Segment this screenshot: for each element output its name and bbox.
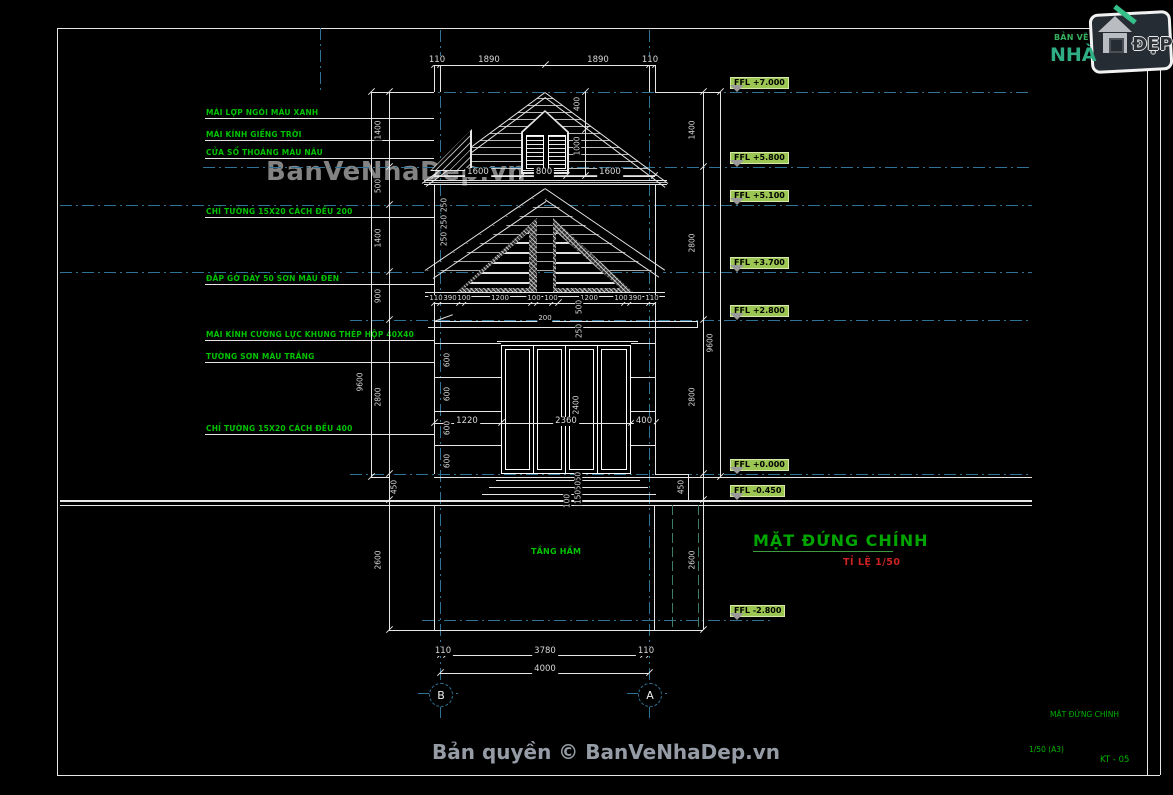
dim-line-left-inner — [389, 92, 390, 630]
logo-name-text: NHÀ — [1050, 44, 1097, 66]
callout-vent-window: CỬA SỔ THOÁNG MÀU NÂU — [206, 149, 323, 157]
dim-value: 600 — [443, 386, 451, 402]
callout-black-molding: ĐẮP GỜ DÀY 50 SƠN MÀU ĐEN — [206, 275, 339, 283]
dim-ext — [655, 65, 656, 92]
grid-line-b — [440, 30, 441, 682]
frame-top — [57, 28, 1160, 29]
dim-value: 1600 — [465, 168, 491, 177]
callout-glass-canopy: MÁI KÍNH CƯỜNG LỰC KHUNG THÉP HỘP 40X40 — [206, 331, 414, 339]
dim-value: 2800 — [688, 386, 696, 407]
titleblock-sheet-no: KT - 05 — [1100, 755, 1129, 765]
dim-value: 2400 — [572, 394, 580, 415]
step-line — [489, 487, 648, 488]
door-lintel — [497, 341, 638, 342]
dim-value: 1890 — [476, 56, 502, 65]
leader-line — [205, 118, 434, 119]
step-line — [496, 480, 640, 481]
dim-value: 1890 — [585, 56, 611, 65]
site-logo: BẢN VẼ NHÀ ĐẸP — [1040, 8, 1173, 78]
callout-wall-trim-400: CHỈ TƯỜNG 15X20 CÁCH ĐỀU 400 — [206, 425, 353, 433]
dim-value: 110 — [636, 647, 656, 656]
dim-value: 400 — [634, 417, 654, 426]
dim-value: 100 — [563, 493, 571, 509]
dim-value: 250 — [440, 197, 448, 213]
wall-band — [434, 377, 501, 378]
dim-value: 1200 — [490, 295, 510, 302]
leader-line — [205, 434, 434, 435]
door-leaf — [565, 345, 598, 474]
logo-top-text: BẢN VẼ — [1054, 34, 1089, 42]
dim-value: 3780 — [532, 647, 558, 656]
grid-bubble-b: B — [429, 683, 453, 707]
level-marker-arrow — [730, 493, 744, 500]
callout-wall-trim-200: CHỈ TƯỜNG 15X20 CÁCH ĐỀU 200 — [206, 208, 353, 216]
dim-value: 1000 — [573, 135, 581, 156]
gable-eave-line — [425, 292, 665, 293]
dim-value: 110 — [433, 647, 453, 656]
callout-white-wall: TƯỜNG SƠN MÀU TRẮNG — [206, 353, 315, 361]
dim-value: 110 — [640, 56, 660, 65]
dim-value: 450 — [390, 479, 398, 495]
dim-value: 600 — [443, 420, 451, 436]
dim-value: 9600 — [356, 371, 364, 392]
dim-value: 9600 — [706, 332, 714, 353]
dim-value: 150 — [574, 489, 582, 505]
dim-value: 2800 — [374, 386, 382, 407]
dim-value: 1400 — [688, 119, 696, 140]
frame-left — [57, 28, 58, 775]
zero-level-line — [434, 477, 1032, 478]
door-leaf — [597, 345, 631, 474]
dormer-shutter-left — [526, 135, 544, 169]
door-leaf-panel — [505, 349, 530, 470]
dim-value: 1400 — [374, 119, 382, 140]
dim-value: 1600 — [597, 168, 623, 177]
basement-boundary-dash — [698, 505, 699, 630]
wall-band — [631, 411, 655, 412]
level-marker-arrow — [730, 198, 744, 205]
ground-line — [60, 500, 1032, 502]
dim-ext — [655, 92, 720, 93]
dim-value: 2600 — [374, 549, 382, 570]
eave-line — [424, 184, 667, 185]
dim-ext — [371, 92, 434, 93]
dim-value: 200 — [537, 315, 552, 322]
door-leaf-panel — [601, 349, 627, 470]
titleblock-scale: 1/50 (A3) — [1029, 745, 1064, 754]
dim-value: 100 — [543, 295, 558, 302]
wall-band — [631, 343, 655, 344]
callout-roof-tiles: MÁI LỢP NGÓI MÀU XANH — [206, 109, 318, 117]
frame-right-outer — [1160, 28, 1161, 775]
dim-value: 450 — [677, 479, 685, 495]
canopy-line — [434, 321, 697, 322]
door-leaf — [533, 345, 566, 474]
dormer-shutter-right — [548, 135, 566, 169]
door-leaf — [501, 345, 534, 474]
logo-suffix-text: ĐẸP — [1132, 34, 1173, 55]
level-line-7000 — [422, 92, 1032, 93]
level-marker-arrow — [730, 313, 744, 320]
dim-value: 500 — [374, 178, 382, 194]
title-underline — [753, 551, 893, 552]
frame-bottom — [57, 775, 1160, 776]
dim-value: 2360 — [553, 417, 579, 426]
dim-ext — [655, 630, 703, 631]
dim-value: 100 — [456, 295, 471, 302]
basement-wall — [434, 505, 435, 630]
dim-value: 250 — [440, 214, 448, 230]
leader-line — [205, 158, 434, 159]
callout-skylight: MÁI KÍNH GIẾNG TRỜI — [206, 131, 302, 139]
basement-wall — [654, 505, 655, 630]
dim-line-right-inner — [703, 92, 704, 630]
basement-label: TẦNG HẦM — [531, 548, 581, 556]
wall-left — [434, 184, 435, 474]
level-marker-arrow — [730, 467, 744, 474]
wall-band — [631, 445, 655, 446]
dim-value: 400 — [573, 96, 581, 112]
level-marker-arrow — [730, 160, 744, 167]
level-marker-arrow — [730, 613, 744, 620]
level-line-0000 — [350, 474, 1032, 475]
cad-sheet: BanVeNhaDep.vn BẢN VẼ NHÀ ĐẸP MÁI LỢP NG… — [0, 0, 1173, 795]
dim-value: 900 — [374, 288, 382, 304]
dim-ext — [440, 65, 441, 92]
dim-ext — [649, 65, 650, 92]
dim-ext — [655, 474, 688, 475]
dim-value: 800 — [534, 168, 554, 177]
dim-ext — [434, 65, 435, 92]
dim-value: 2800 — [688, 232, 696, 253]
dim-value: 1400 — [374, 227, 382, 248]
drawing-scale: TỈ LỆ 1/50 — [843, 557, 900, 568]
wall-band — [434, 445, 501, 446]
wall-right — [655, 184, 656, 474]
grid-line-b-tail — [440, 706, 441, 718]
eave-line — [424, 180, 667, 181]
wall-band — [434, 411, 501, 412]
level-marker-arrow — [730, 265, 744, 272]
dim-value: 250 — [440, 231, 448, 247]
frame-right-inner — [1147, 28, 1148, 775]
dim-value: 110 — [644, 295, 659, 302]
footer-copyright: Bản quyền © BanVeNhaDep.vn — [432, 740, 780, 764]
leader-line — [205, 284, 434, 285]
dim-value: 390 — [627, 295, 642, 302]
level-line-3700 — [60, 272, 1032, 273]
wall-band — [434, 343, 501, 344]
dim-line-dormer — [585, 92, 586, 176]
leader-line — [205, 340, 434, 341]
drawing-title: MẶT ĐỨNG CHÍNH — [753, 531, 929, 550]
dim-value: 600 — [443, 352, 451, 368]
stray-grid-line — [320, 28, 321, 94]
dim-line-right-450 — [688, 474, 689, 500]
dim-value: 100 — [526, 295, 541, 302]
dim-value: 2600 — [688, 549, 696, 570]
wall-band — [631, 377, 655, 378]
dim-value: 4000 — [532, 665, 558, 674]
grid-line-a — [649, 30, 650, 682]
house-window-icon — [1109, 38, 1124, 53]
dim-value: 1220 — [454, 417, 480, 426]
leader-line — [205, 140, 434, 141]
level-line-m2800 — [422, 620, 770, 621]
basement-floor — [434, 630, 655, 631]
door-leaf-panel — [537, 349, 562, 470]
canopy-edge — [697, 321, 698, 328]
ground-line-lower — [60, 505, 1032, 506]
dim-value: 600 — [443, 453, 451, 469]
grid-bubble-a: A — [638, 683, 662, 707]
dim-value: 250 — [575, 323, 583, 339]
canopy-line — [428, 327, 697, 328]
tk-element — [700, 626, 707, 633]
dim-value: 110 — [427, 56, 447, 65]
titleblock-drawing-name: MẶT ĐỨNG CHÍNH — [1050, 710, 1119, 719]
level-marker-arrow — [730, 85, 744, 92]
leader-line — [205, 217, 434, 218]
dim-line-left-outer — [371, 92, 372, 477]
basement-boundary-dash — [672, 505, 673, 630]
dim-ext — [389, 630, 434, 631]
dim-line-right-outer — [720, 92, 721, 477]
dim-value: 500 — [575, 299, 583, 315]
grid-line-a-tail — [649, 706, 650, 718]
leader-line — [205, 362, 434, 363]
